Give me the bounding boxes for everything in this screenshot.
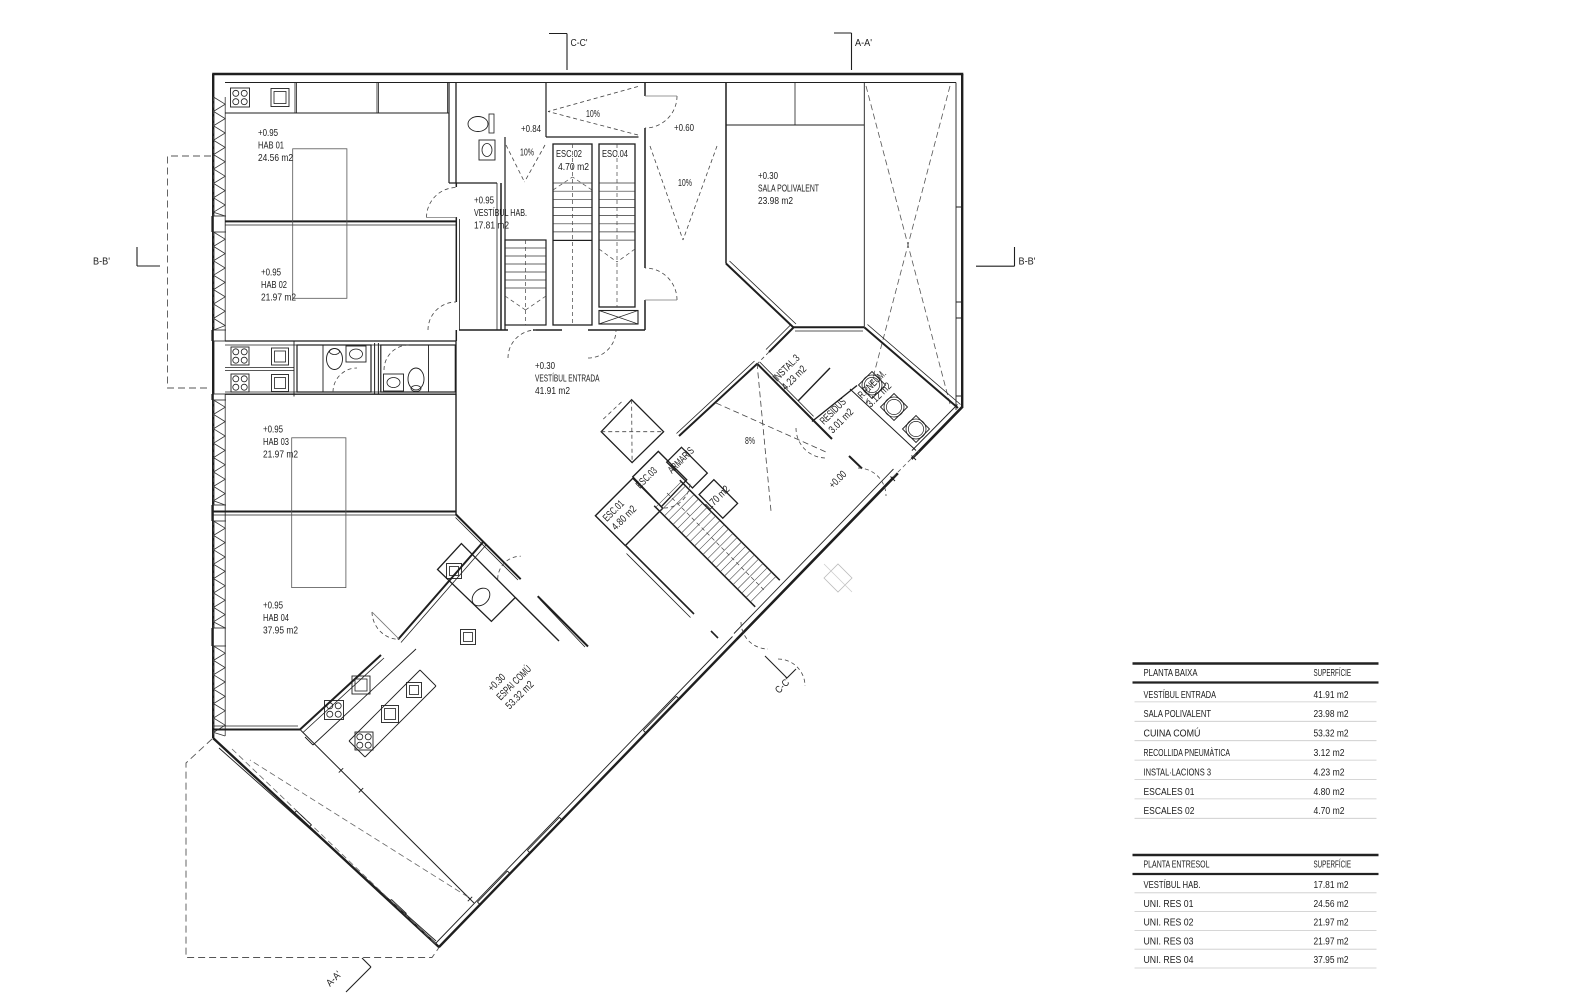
svg-text:VESTÍBUL HAB.: VESTÍBUL HAB.: [1144, 878, 1201, 891]
svg-text:CUINA COMÚ: CUINA COMÚ: [1144, 727, 1201, 740]
svg-text:+0.95: +0.95: [263, 424, 283, 436]
svg-text:B-B': B-B': [1019, 257, 1036, 268]
svg-text:SALA POLIVALENT: SALA POLIVALENT: [1144, 709, 1212, 720]
svg-text:UNI. RES 03: UNI. RES 03: [1144, 936, 1194, 947]
svg-text:10%: 10%: [586, 108, 600, 120]
svg-text:+0.30: +0.30: [758, 170, 778, 182]
svg-text:INSTAL·LACIONS 3: INSTAL·LACIONS 3: [1144, 767, 1212, 778]
svg-text:ESCALES 01: ESCALES 01: [1144, 787, 1195, 798]
svg-text:21.97 m2: 21.97 m2: [1314, 936, 1349, 947]
svg-text:37.95 m2: 37.95 m2: [263, 625, 298, 637]
svg-text:B-B': B-B': [93, 257, 110, 268]
svg-text:24.56 m2: 24.56 m2: [258, 152, 293, 164]
svg-text:HAB 01: HAB 01: [258, 140, 284, 152]
svg-text:UNI. RES 02: UNI. RES 02: [1144, 918, 1194, 929]
svg-text:SUPERFÍCIE: SUPERFÍCIE: [1314, 858, 1352, 871]
svg-text:23.98 m2: 23.98 m2: [1314, 709, 1349, 720]
svg-text:+0.60: +0.60: [674, 122, 694, 134]
svg-text:ESC.04: ESC.04: [602, 148, 628, 160]
svg-text:41.91 m2: 41.91 m2: [1314, 690, 1349, 701]
svg-text:10%: 10%: [678, 177, 692, 189]
svg-text:VESTÍBUL ENTRADA: VESTÍBUL ENTRADA: [535, 372, 600, 385]
svg-text:A-A': A-A': [855, 38, 872, 49]
svg-text:HAB 03: HAB 03: [263, 436, 289, 448]
svg-text:4.70 m2: 4.70 m2: [1314, 806, 1345, 817]
svg-text:UNI. RES 01: UNI. RES 01: [1144, 899, 1194, 910]
svg-text:PLANTA BAIXA: PLANTA BAIXA: [1144, 668, 1198, 679]
svg-text:4.70 m2: 4.70 m2: [558, 161, 589, 173]
svg-text:53.32 m2: 53.32 m2: [1314, 729, 1349, 740]
svg-text:+0.30: +0.30: [535, 360, 555, 372]
svg-text:UNI. RES 04: UNI. RES 04: [1144, 955, 1194, 966]
svg-text:17.81 m2: 17.81 m2: [1314, 880, 1349, 891]
svg-text:24.56 m2: 24.56 m2: [1314, 899, 1349, 910]
svg-text:3.12 m2: 3.12 m2: [1314, 748, 1345, 759]
svg-text:17.81 m2: 17.81 m2: [474, 220, 509, 232]
svg-text:37.95 m2: 37.95 m2: [1314, 955, 1349, 966]
svg-text:VESTÍBUL ENTRADA: VESTÍBUL ENTRADA: [1144, 688, 1217, 701]
svg-text:ESCALES 02: ESCALES 02: [1144, 806, 1195, 817]
svg-text:SUPERFÍCIE: SUPERFÍCIE: [1314, 666, 1352, 679]
svg-text:4.23 m2: 4.23 m2: [1314, 767, 1345, 778]
svg-text:23.98 m2: 23.98 m2: [758, 195, 793, 207]
svg-text:C-C': C-C': [571, 38, 588, 49]
svg-text:41.91 m2: 41.91 m2: [535, 385, 570, 397]
svg-text:10%: 10%: [520, 147, 534, 159]
svg-text:+0.95: +0.95: [474, 195, 494, 207]
svg-text:21.97 m2: 21.97 m2: [261, 292, 296, 304]
svg-text:+0.95: +0.95: [261, 267, 281, 279]
svg-text:+0.95: +0.95: [263, 600, 283, 612]
svg-text:HAB 04: HAB 04: [263, 612, 289, 624]
svg-text:HAB 02: HAB 02: [261, 279, 287, 291]
svg-text:21.97 m2: 21.97 m2: [263, 449, 298, 461]
svg-text:+0.95: +0.95: [258, 127, 278, 139]
svg-text:+0.84: +0.84: [521, 123, 541, 135]
svg-text:ESC.02: ESC.02: [556, 148, 582, 160]
svg-text:PLANTA ENTRESOL: PLANTA ENTRESOL: [1144, 860, 1210, 871]
svg-text:VESTÍBUL HAB.: VESTÍBUL HAB.: [474, 206, 527, 219]
svg-text:SALA POLIVALENT: SALA POLIVALENT: [758, 183, 819, 195]
svg-text:21.97 m2: 21.97 m2: [1314, 918, 1349, 929]
svg-text:4.80 m2: 4.80 m2: [1314, 787, 1345, 798]
svg-text:8%: 8%: [745, 435, 755, 447]
svg-text:RECOLLIDA PNEUMÀTICA: RECOLLIDA PNEUMÀTICA: [1144, 746, 1231, 759]
